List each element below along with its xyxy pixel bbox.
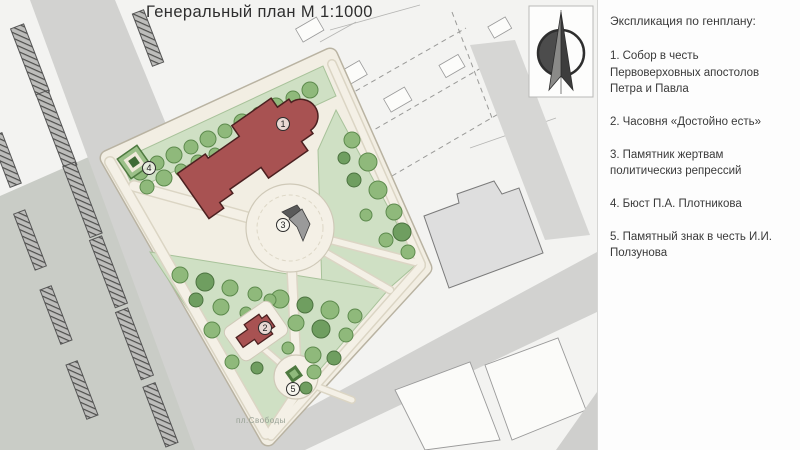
- street-label: пл.Свободы: [236, 416, 286, 425]
- legend-item-1: 1.Собор в честь Первоверховных апостолов…: [610, 48, 786, 98]
- central-plaza: [246, 184, 334, 272]
- page-title: Генеральный план М 1:1000: [146, 3, 373, 22]
- north-arrow-icon: [529, 6, 593, 97]
- legend-item-5: 5.Памятный знак в честь И.И. Ползунова: [610, 229, 786, 262]
- plan-marker-1: 1: [276, 117, 290, 131]
- legend-header: Экспликация по генплану:: [610, 14, 786, 28]
- plan-marker-5: 5: [286, 382, 300, 396]
- genplan-slide: пл.Свободы Генеральный план М 1:1000 1 2…: [0, 0, 800, 450]
- plan-marker-4: 4: [142, 161, 156, 175]
- plan-marker-2: 2: [258, 321, 272, 335]
- legend-item-4: 4.Бюст П.А. Плотникова: [610, 196, 786, 213]
- plan-marker-3: 3: [276, 218, 290, 232]
- legend-item-2: 2.Часовня «Достойно есть»: [610, 114, 786, 131]
- legend-panel: Экспликация по генплану: 1.Собор в честь…: [597, 0, 800, 450]
- legend-item-3: 3.Памятник жертвам политическиз репресси…: [610, 147, 786, 180]
